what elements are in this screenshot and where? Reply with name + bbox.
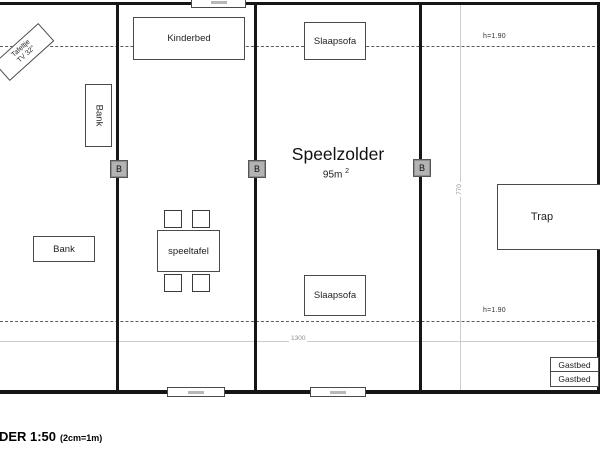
window-dim-mark bbox=[330, 391, 346, 394]
height-note-top: h=1.90 bbox=[483, 33, 506, 40]
furniture-slaapsofa-bottom: Slaapsofa bbox=[304, 275, 366, 316]
wall-interior-3 bbox=[419, 2, 422, 394]
scale-note-detail: (2cm=1m) bbox=[60, 433, 102, 443]
furniture-bank-horizontal: Bank bbox=[33, 236, 95, 262]
furniture-bank-vertical: Bank bbox=[85, 84, 112, 147]
chair-top-left bbox=[164, 210, 182, 228]
furniture-slaapsofa-top: Slaapsofa bbox=[304, 22, 366, 60]
furniture-gastbed-2: Gastbed bbox=[550, 371, 599, 387]
window-bottom-left bbox=[167, 387, 225, 397]
room-area: 95m 2 bbox=[323, 168, 349, 180]
wall-top bbox=[0, 2, 600, 5]
beam-marker-label: B bbox=[419, 163, 425, 173]
bank-vertical-label: Bank bbox=[93, 105, 104, 127]
window-top bbox=[191, 0, 246, 8]
beam-marker-label: B bbox=[254, 164, 260, 174]
furniture-speeltafel: speeltafel bbox=[157, 230, 220, 272]
chair-bottom-left bbox=[164, 274, 182, 292]
dimension-width-label: 1300 bbox=[289, 335, 307, 342]
chair-top-right bbox=[192, 210, 210, 228]
gastbed-1-label: Gastbed bbox=[558, 360, 590, 370]
chair-bottom-right bbox=[192, 274, 210, 292]
floorplan-canvas: Tafeltje TV 32" Bank Bank Kinderbed spee… bbox=[0, 0, 600, 450]
height-note-bottom: h=1.90 bbox=[483, 307, 506, 314]
beam-marker-b-1: B bbox=[110, 160, 128, 178]
furniture-kinderbed: Kinderbed bbox=[133, 17, 245, 60]
wall-interior-1 bbox=[116, 2, 119, 394]
window-dim-mark bbox=[188, 391, 204, 394]
wall-interior-2 bbox=[254, 2, 257, 394]
beam-marker-label: B bbox=[116, 164, 122, 174]
bank-horizontal-label: Bank bbox=[53, 244, 75, 255]
trap-label: Trap bbox=[531, 211, 553, 223]
room-area-value: 95m bbox=[323, 169, 342, 180]
dimension-line-depth bbox=[460, 3, 461, 391]
beam-marker-b-3: B bbox=[413, 159, 431, 177]
dashed-height-line-bottom bbox=[0, 321, 600, 322]
dashed-height-line-top bbox=[0, 46, 600, 47]
furniture-trap: Trap bbox=[497, 184, 600, 250]
furniture-tafeltje-tv: Tafeltje TV 32" bbox=[0, 23, 54, 81]
furniture-gastbed-1: Gastbed bbox=[550, 357, 599, 372]
dimension-depth-label: 770 bbox=[456, 182, 463, 197]
room-title: Speelzolder bbox=[292, 144, 384, 165]
window-dim-mark bbox=[211, 1, 227, 4]
wall-bottom bbox=[0, 390, 600, 394]
slaapsofa-top-label: Slaapsofa bbox=[314, 36, 356, 47]
kinderbed-label: Kinderbed bbox=[167, 33, 210, 44]
window-bottom-right bbox=[310, 387, 366, 397]
room-area-exponent: 2 bbox=[345, 168, 349, 175]
scale-note: LDER 1:50(2cm=1m) bbox=[0, 428, 102, 446]
beam-marker-b-2: B bbox=[248, 160, 266, 178]
scale-note-main: LDER 1:50 bbox=[0, 429, 56, 444]
gastbed-2-label: Gastbed bbox=[558, 374, 590, 384]
slaapsofa-bottom-label: Slaapsofa bbox=[314, 290, 356, 301]
speeltafel-label: speeltafel bbox=[168, 246, 209, 257]
